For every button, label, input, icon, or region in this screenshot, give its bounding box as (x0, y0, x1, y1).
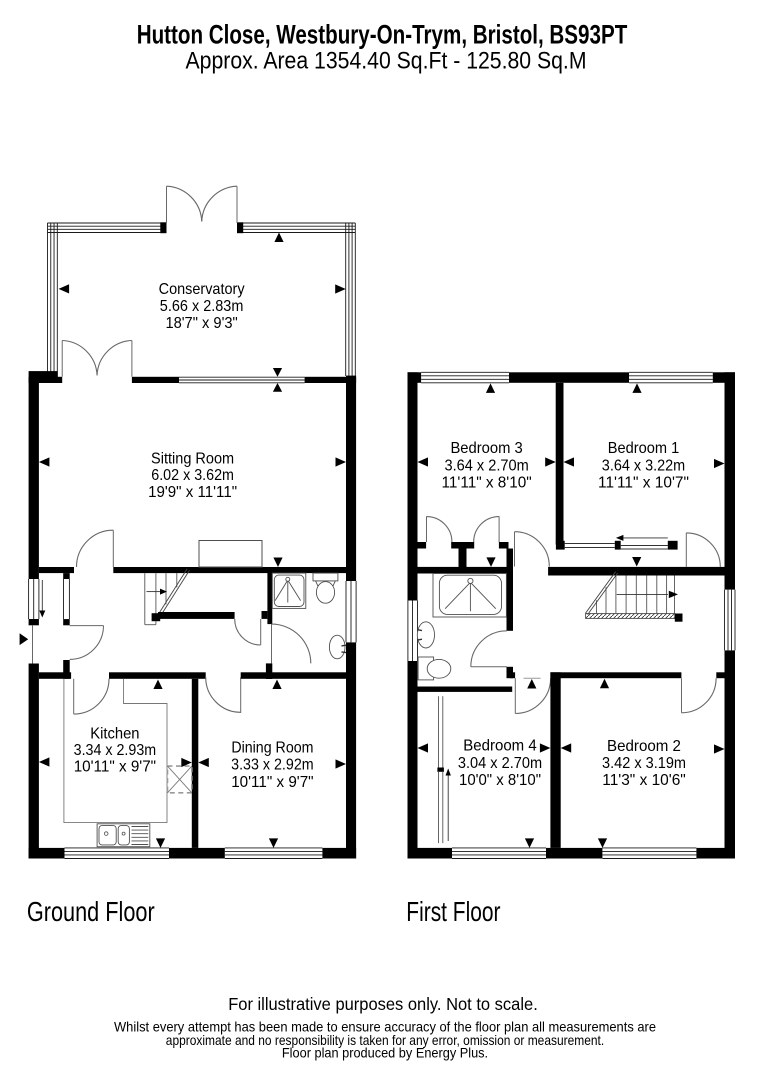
svg-text:Hutton Close, Westbury-On-Trym: Hutton Close, Westbury-On-Trym, Bristol,… (137, 20, 628, 50)
svg-text:3.33 x 2.92m: 3.33 x 2.92m (231, 757, 314, 774)
svg-text:Bedroom 3: Bedroom 3 (450, 440, 522, 457)
svg-text:5.66 x 2.83m: 5.66 x 2.83m (160, 298, 244, 315)
svg-text:18'7" x 9'3": 18'7" x 9'3" (165, 315, 237, 332)
svg-text:Sitting Room: Sitting Room (151, 450, 234, 467)
svg-text:Bedroom 4: Bedroom 4 (463, 738, 536, 755)
svg-text:Bedroom 1: Bedroom 1 (608, 440, 679, 457)
svg-text:10'11" x 9'7": 10'11" x 9'7" (74, 759, 156, 776)
svg-text:For illustrative purposes only: For illustrative purposes only. Not to s… (228, 994, 538, 1014)
svg-text:Bedroom 2: Bedroom 2 (607, 738, 681, 755)
svg-text:3.34 x 2.93m: 3.34 x 2.93m (74, 742, 157, 759)
svg-text:19'9" x 11'11": 19'9" x 11'11" (148, 484, 237, 501)
svg-text:3.64 x 3.22m: 3.64 x 3.22m (602, 457, 685, 474)
svg-text:10'0" x 8'10": 10'0" x 8'10" (459, 772, 541, 789)
svg-text:11'3" x 10'6": 11'3" x 10'6" (602, 772, 686, 789)
svg-text:3.64 x 2.70m: 3.64 x 2.70m (445, 457, 529, 474)
svg-text:Dining Room: Dining Room (231, 740, 313, 757)
svg-text:Conservatory: Conservatory (159, 281, 245, 298)
svg-text:10'11" x 9'7": 10'11" x 9'7" (231, 774, 313, 791)
svg-text:Ground Floor: Ground Floor (27, 896, 155, 927)
svg-text:First Floor: First Floor (406, 896, 500, 927)
svg-text:11'11" x 10'7": 11'11" x 10'7" (598, 475, 689, 492)
svg-text:Approx. Area 1354.40 Sq.Ft - 1: Approx. Area 1354.40 Sq.Ft - 125.80 Sq.M (186, 48, 587, 75)
svg-text:3.42 x 3.19m: 3.42 x 3.19m (602, 755, 686, 772)
svg-text:3.04 x 2.70m: 3.04 x 2.70m (458, 755, 542, 772)
svg-text:Kitchen: Kitchen (90, 726, 139, 743)
svg-text:6.02 x 3.62m: 6.02 x 3.62m (151, 467, 234, 484)
svg-text:11'11" x 8'10": 11'11" x 8'10" (442, 475, 532, 492)
svg-text:Floor plan produced by Energy: Floor plan produced by Energy Plus. (282, 1046, 488, 1061)
